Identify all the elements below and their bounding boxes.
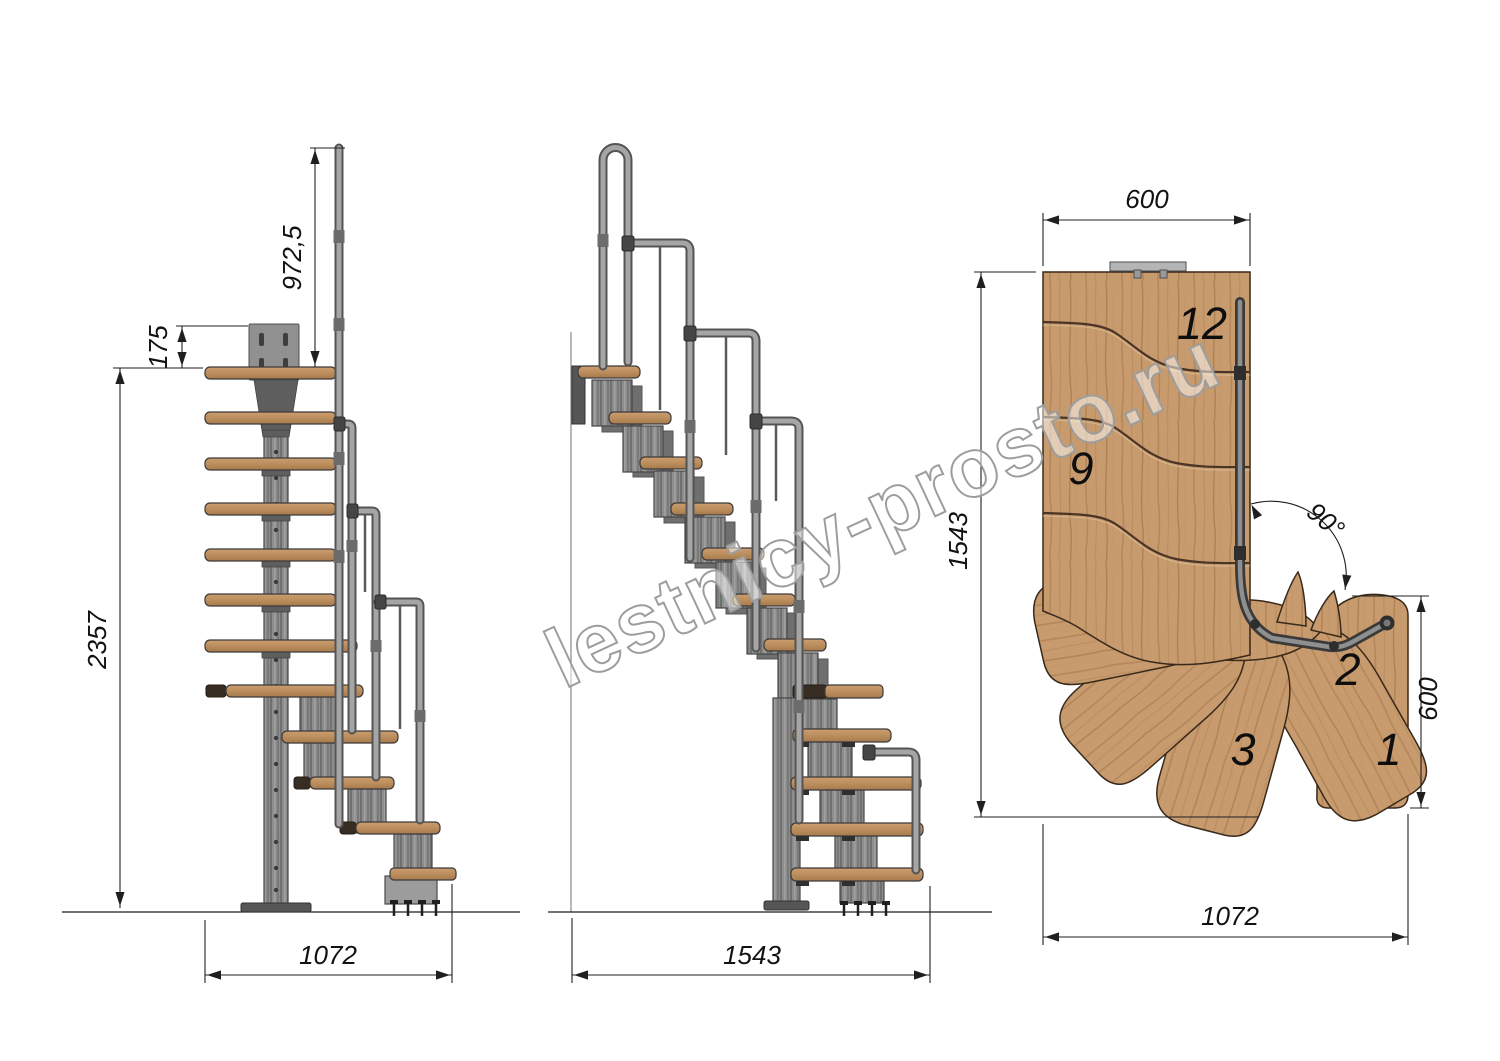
- tread: [205, 367, 336, 379]
- dim-front-base-width-label: 1543: [723, 940, 781, 970]
- tread: [791, 868, 923, 881]
- tread: [609, 412, 671, 424]
- step-number-1: 1: [1376, 724, 1401, 775]
- tread: [390, 868, 456, 880]
- tread: [825, 685, 883, 698]
- tread: [793, 729, 891, 742]
- tread: [205, 594, 336, 606]
- tread: [205, 412, 336, 424]
- dim-top-offset-label: 175: [143, 325, 173, 369]
- dim-side-base-width-label: 1072: [299, 940, 357, 970]
- dim-rail-height-label: 972,5: [277, 225, 307, 291]
- dim-total-height-label: 2357: [82, 610, 112, 670]
- tread: [310, 777, 394, 789]
- stair-technical-drawing: 972,5 175 2357 1072: [0, 0, 1500, 1061]
- step-number-3: 3: [1230, 724, 1255, 775]
- tread: [791, 823, 923, 836]
- tread: [356, 822, 440, 834]
- post-base-flange: [764, 901, 809, 910]
- step-number-2: 2: [1334, 644, 1360, 695]
- tread: [205, 503, 336, 515]
- dim-plan-right-width-label: 600: [1413, 677, 1443, 721]
- tread: [205, 640, 357, 652]
- dim-plan-top-width-label: 600: [1125, 184, 1169, 214]
- tread: [578, 366, 640, 378]
- column-base-flange: [241, 903, 311, 912]
- dim-plan-bottom-width-label: 1072: [1201, 901, 1259, 931]
- tread: [205, 458, 336, 470]
- tread: [671, 503, 733, 515]
- tread: [205, 549, 336, 561]
- tread: [791, 777, 921, 790]
